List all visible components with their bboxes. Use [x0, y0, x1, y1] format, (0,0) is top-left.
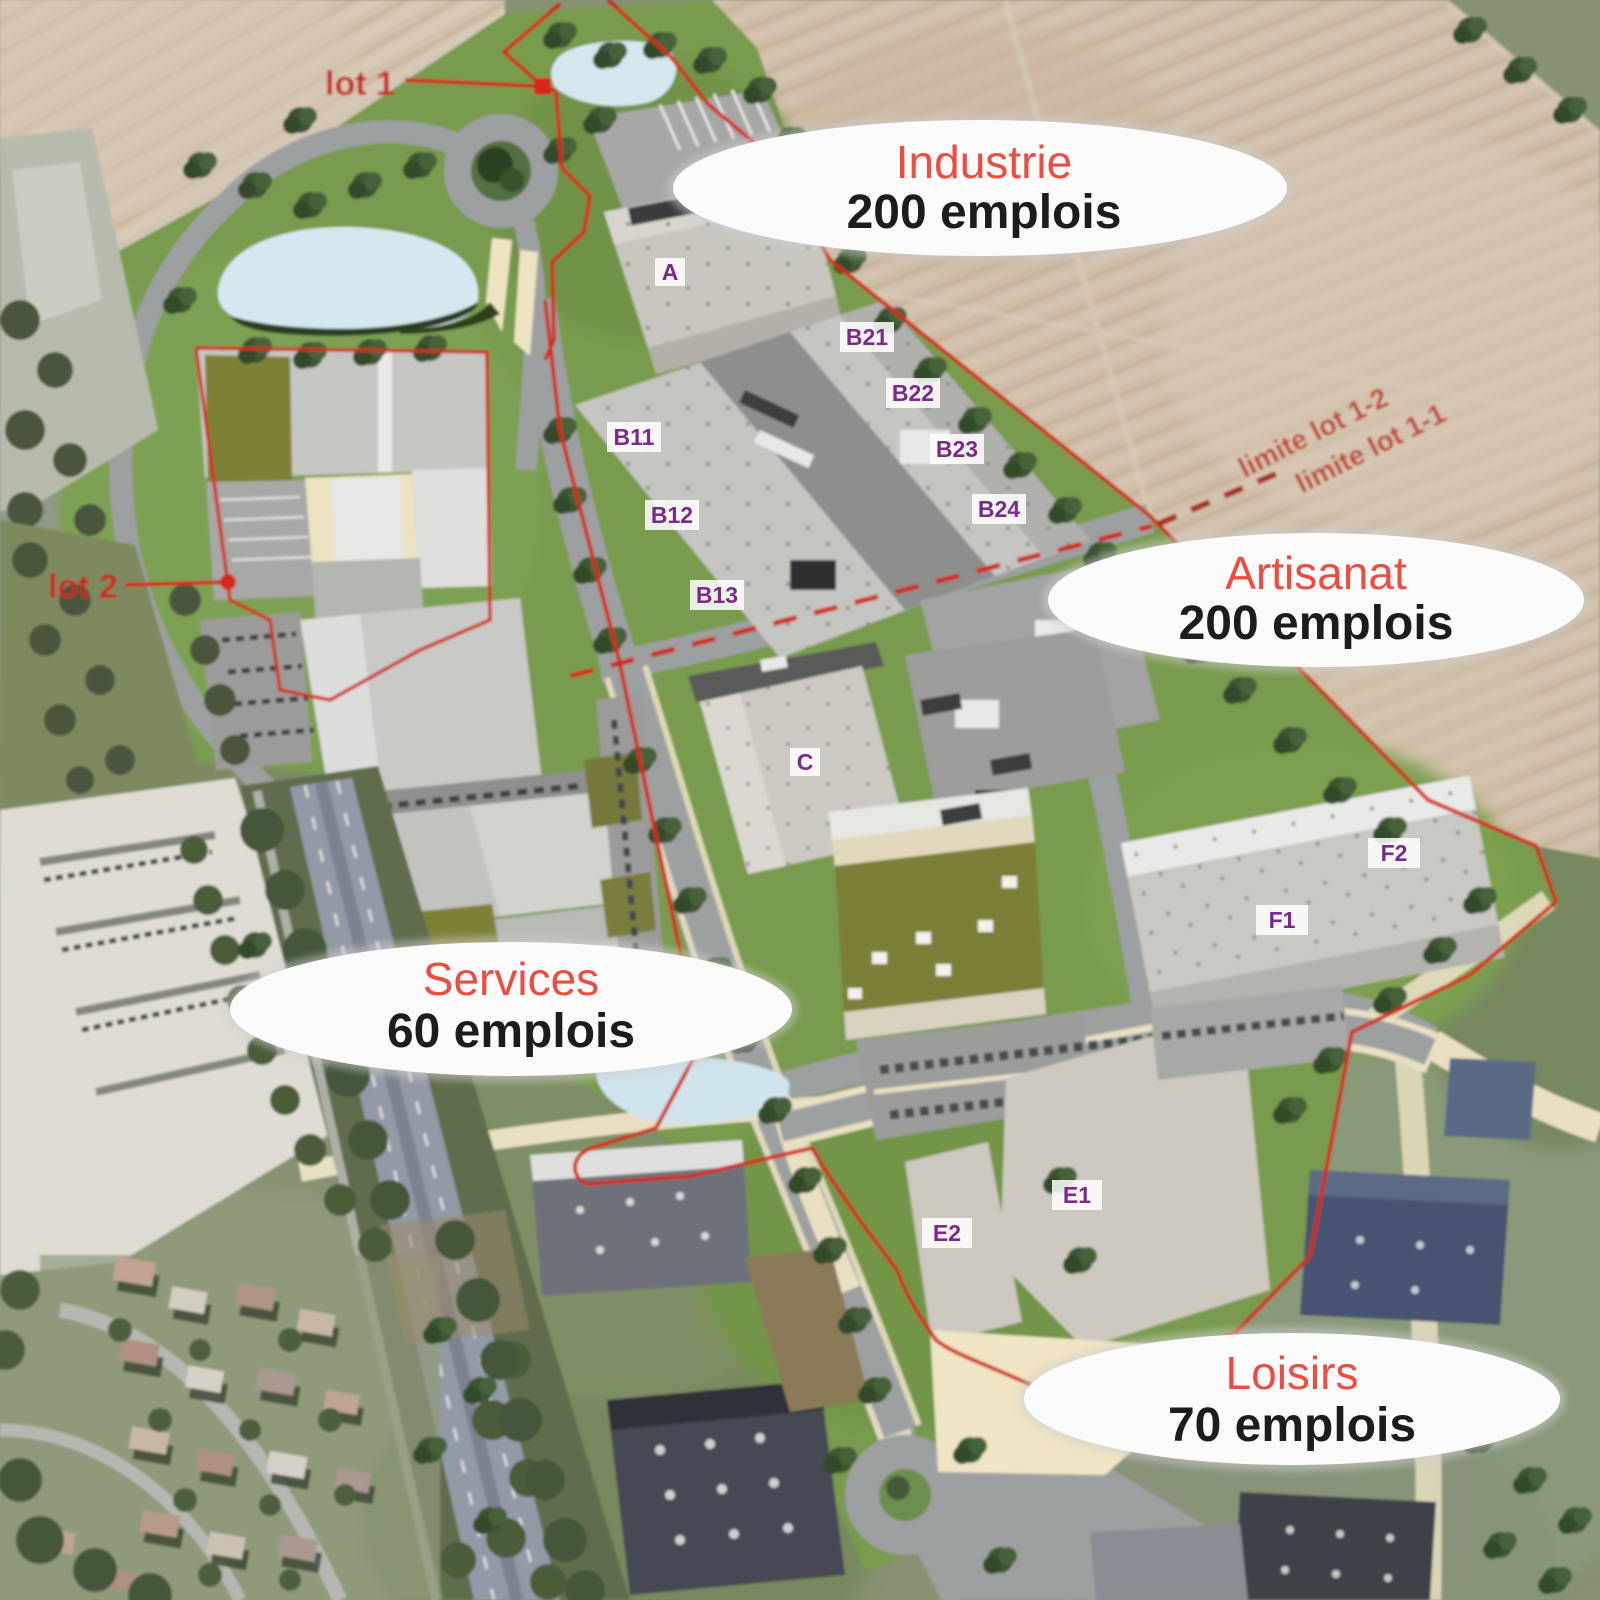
svg-text:B23: B23 [936, 436, 978, 462]
svg-text:60 emplois: 60 emplois [387, 1005, 635, 1058]
svg-text:Artisanat: Artisanat [1225, 547, 1407, 599]
svg-text:B11: B11 [614, 424, 655, 450]
svg-text:F1: F1 [1269, 907, 1296, 933]
svg-text:200 emplois: 200 emplois [847, 186, 1122, 239]
svg-text:C: C [797, 749, 814, 775]
svg-text:B24: B24 [978, 496, 1020, 522]
svg-text:B12: B12 [651, 502, 693, 528]
svg-text:F2: F2 [1381, 840, 1408, 866]
svg-text:E2: E2 [933, 1220, 961, 1246]
svg-text:lot 1: lot 1 [325, 65, 395, 103]
svg-text:Industrie: Industrie [896, 136, 1072, 188]
svg-text:B22: B22 [892, 380, 934, 406]
svg-text:B13: B13 [696, 582, 738, 608]
svg-text:lot 2: lot 2 [48, 568, 118, 606]
svg-text:A: A [662, 259, 679, 285]
svg-text:200 emplois: 200 emplois [1179, 597, 1454, 650]
svg-text:70 emplois: 70 emplois [1168, 1399, 1416, 1452]
svg-text:E1: E1 [1063, 1182, 1091, 1208]
svg-text:Services: Services [423, 953, 599, 1005]
svg-text:B21: B21 [846, 324, 888, 350]
svg-text:Loisirs: Loisirs [1226, 1347, 1359, 1399]
